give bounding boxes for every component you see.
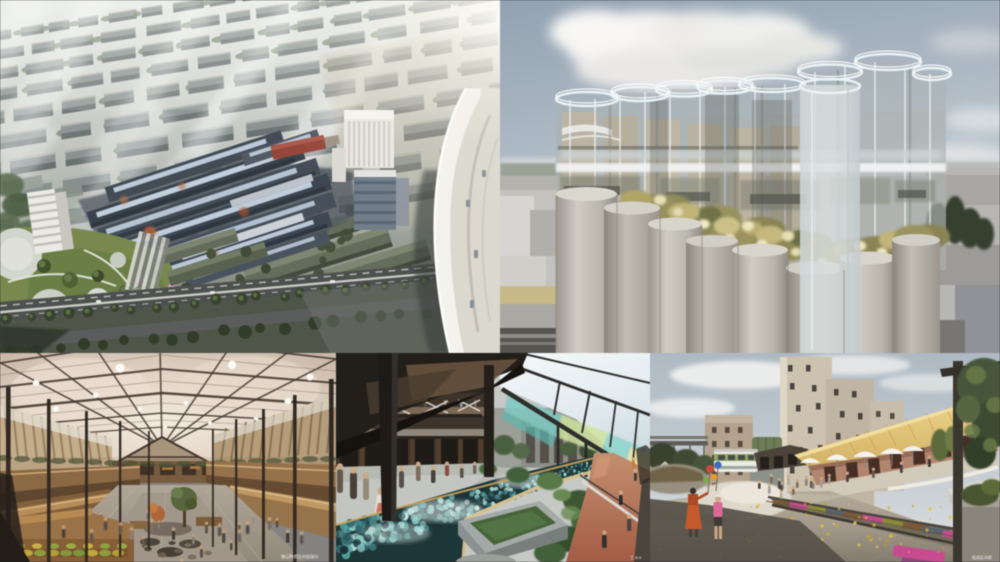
svg-text:既成区块群: 既成区块群 (972, 554, 992, 560)
svg-text:工 B 8: 工 B 8 (630, 555, 642, 560)
svg-text:唐山陶瓷文创园展示: 唐山陶瓷文创园展示 (281, 553, 319, 560)
